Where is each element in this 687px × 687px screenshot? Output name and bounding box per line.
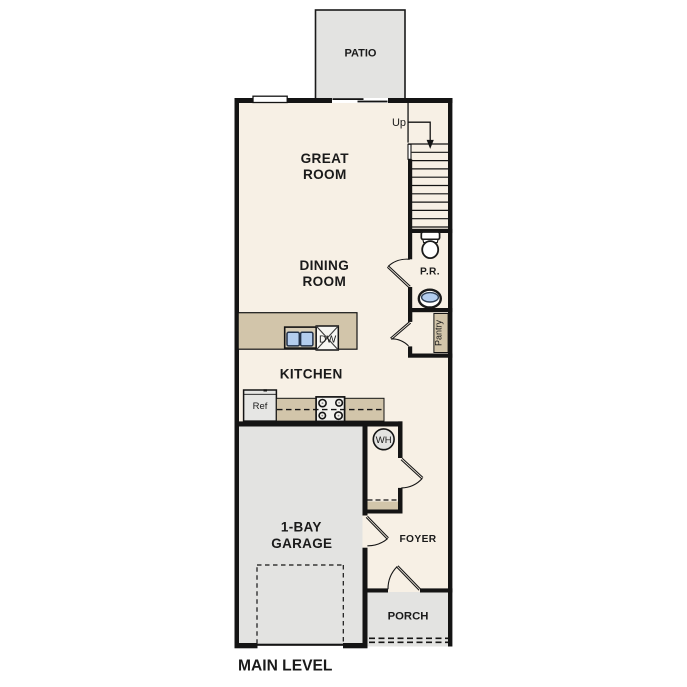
svg-text:GARAGE: GARAGE xyxy=(271,536,332,551)
svg-text:Ref: Ref xyxy=(253,401,268,412)
svg-text:DINING: DINING xyxy=(299,258,349,273)
svg-text:PORCH: PORCH xyxy=(388,611,429,623)
svg-text:ROOM: ROOM xyxy=(302,274,346,289)
svg-text:FOYER: FOYER xyxy=(399,534,436,545)
svg-text:WH: WH xyxy=(376,435,392,446)
svg-text:MAIN LEVEL: MAIN LEVEL xyxy=(238,658,333,675)
svg-text:P.R.: P.R. xyxy=(420,267,440,278)
svg-text:PATIO: PATIO xyxy=(345,48,377,60)
svg-text:GREAT: GREAT xyxy=(301,151,350,166)
svg-text:ROOM: ROOM xyxy=(303,167,347,182)
svg-text:1-BAY: 1-BAY xyxy=(281,519,322,534)
svg-text:Up: Up xyxy=(392,117,406,129)
svg-text:Pantry: Pantry xyxy=(434,319,444,346)
svg-text:DW: DW xyxy=(319,335,336,346)
svg-text:KITCHEN: KITCHEN xyxy=(280,366,343,381)
